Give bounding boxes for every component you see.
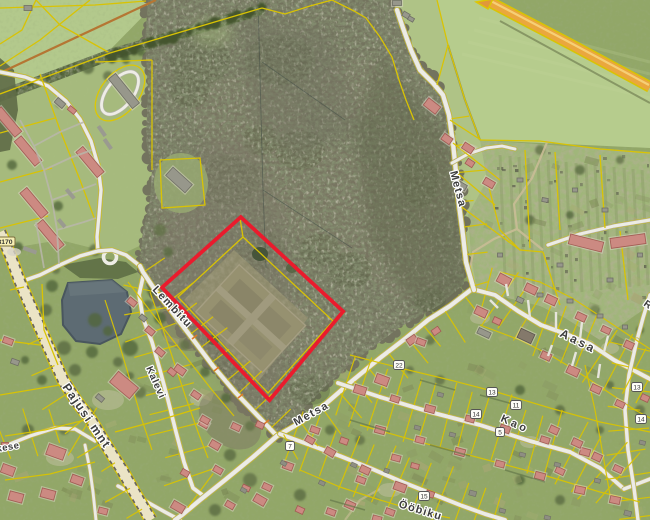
svg-text:15: 15 bbox=[420, 493, 428, 500]
svg-text:14: 14 bbox=[637, 416, 645, 423]
svg-text:5: 5 bbox=[498, 429, 502, 436]
svg-text:11: 11 bbox=[513, 402, 520, 409]
svg-text:7: 7 bbox=[288, 443, 292, 450]
svg-text:13: 13 bbox=[633, 384, 641, 391]
svg-text:8170: 8170 bbox=[0, 239, 13, 246]
svg-text:22: 22 bbox=[395, 362, 403, 369]
svg-text:13: 13 bbox=[488, 389, 496, 396]
svg-text:14: 14 bbox=[472, 411, 480, 418]
